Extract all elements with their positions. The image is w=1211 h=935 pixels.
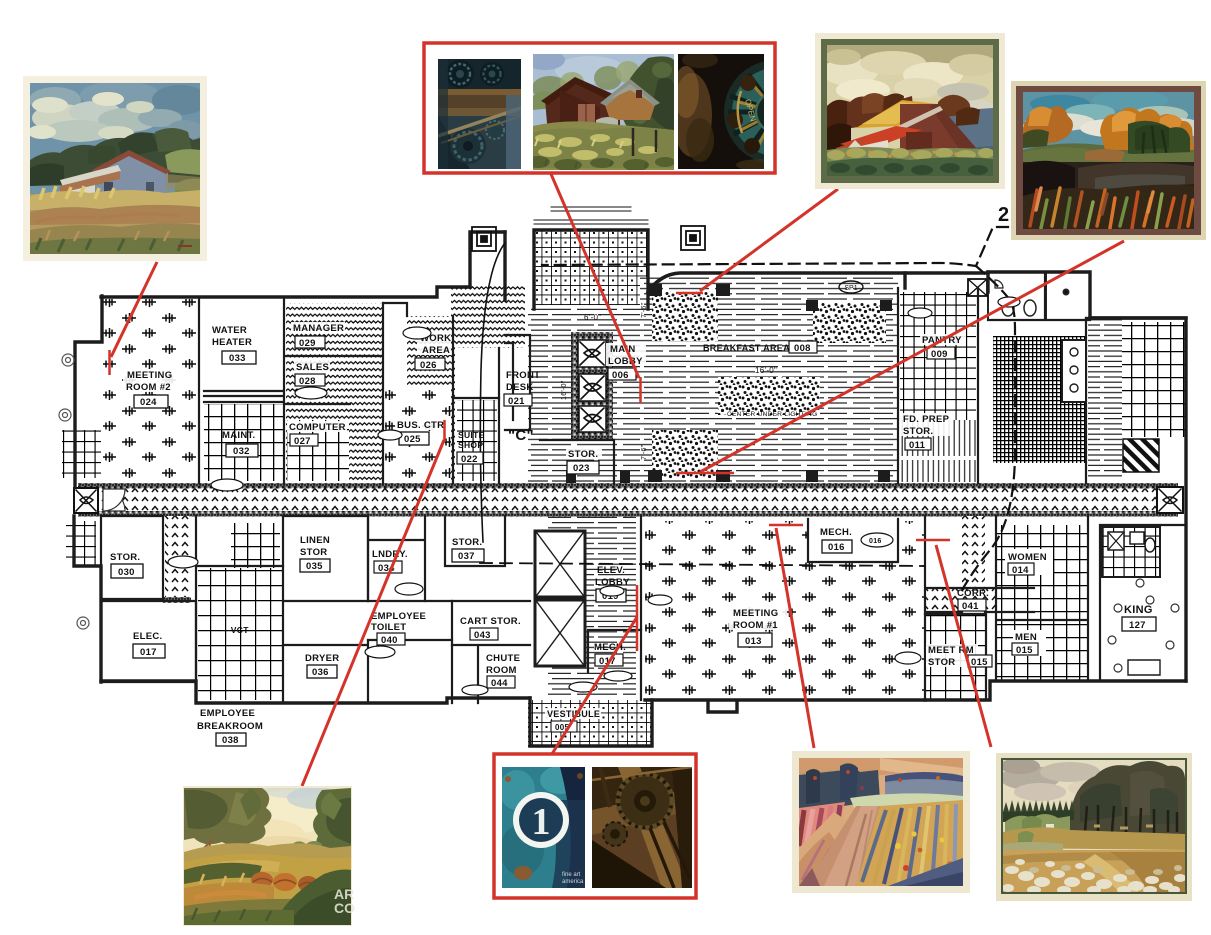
- svg-text:016: 016: [869, 538, 882, 545]
- svg-text:CHUTE: CHUTE: [486, 653, 520, 664]
- svg-text:AREA: AREA: [422, 345, 450, 356]
- svg-text:013: 013: [745, 636, 762, 647]
- svg-text:7'-6": 7'-6": [641, 444, 648, 460]
- svg-text:STOR.: STOR.: [452, 537, 482, 548]
- svg-text:LINEN: LINEN: [300, 535, 330, 546]
- svg-text:023: 023: [573, 463, 590, 474]
- svg-text:040: 040: [381, 635, 398, 646]
- svg-text:DESK: DESK: [506, 382, 534, 393]
- svg-text:DRYER: DRYER: [305, 653, 339, 664]
- svg-text:ROOM #1: ROOM #1: [733, 620, 778, 631]
- svg-text:127: 127: [1129, 620, 1146, 631]
- svg-text:MECH.: MECH.: [820, 527, 852, 538]
- svg-text:america: america: [562, 879, 584, 885]
- svg-text:CO: CO: [334, 900, 355, 916]
- svg-text:SHOP: SHOP: [458, 440, 483, 450]
- svg-text:STOR.: STOR.: [568, 449, 598, 460]
- svg-text:014: 014: [1012, 565, 1029, 576]
- svg-text:16'-0": 16'-0": [755, 366, 777, 375]
- svg-text:1: 1: [532, 801, 551, 843]
- svg-text:16'-0": 16'-0": [561, 380, 568, 400]
- svg-text:STOR: STOR: [300, 547, 327, 558]
- svg-text:WOMEN: WOMEN: [1008, 552, 1047, 563]
- svg-text:BUS. CTR: BUS. CTR: [397, 420, 444, 431]
- svg-text:029: 029: [299, 338, 316, 349]
- svg-text:BREAKFAST AREA: BREAKFAST AREA: [703, 343, 790, 353]
- svg-text:STOR: STOR: [928, 657, 955, 668]
- svg-text:044: 044: [491, 678, 508, 689]
- svg-text:BREAKROOM: BREAKROOM: [197, 721, 263, 732]
- svg-text:021: 021: [508, 396, 525, 407]
- svg-text:011: 011: [909, 440, 926, 451]
- svg-text:036: 036: [312, 667, 329, 678]
- svg-text:SUITE: SUITE: [458, 430, 485, 440]
- svg-text:006: 006: [612, 370, 629, 381]
- svg-text:EMPLOYEE: EMPLOYEE: [200, 708, 255, 719]
- svg-text:ROOM #2: ROOM #2: [126, 382, 171, 393]
- svg-text:TOILET: TOILET: [371, 622, 406, 633]
- svg-text:STOR.: STOR.: [903, 426, 933, 437]
- svg-text:KING: KING: [1124, 604, 1153, 616]
- svg-text:COMPUTER: COMPUTER: [289, 422, 346, 433]
- svg-text:FRONT: FRONT: [506, 370, 540, 381]
- svg-text:STOR.: STOR.: [110, 552, 140, 563]
- svg-text:CORR.: CORR.: [957, 588, 989, 599]
- svg-text:041: 041: [962, 601, 979, 612]
- svg-text:LNDRY.: LNDRY.: [372, 549, 408, 560]
- svg-text:SP1: SP1: [844, 285, 857, 292]
- svg-text:LOBBY: LOBBY: [608, 356, 643, 367]
- svg-text:009: 009: [931, 349, 948, 360]
- svg-text:033: 033: [229, 353, 246, 364]
- svg-text:MEN: MEN: [1015, 632, 1037, 643]
- svg-text:FD. PREP: FD. PREP: [903, 414, 950, 425]
- svg-text:043: 043: [474, 630, 491, 641]
- svg-text:WATER: WATER: [212, 325, 247, 336]
- svg-text:EMPLOYEE: EMPLOYEE: [371, 611, 426, 622]
- svg-text:MANAGER: MANAGER: [293, 323, 344, 334]
- svg-text:016: 016: [828, 542, 845, 553]
- svg-text:2: 2: [998, 204, 1009, 226]
- svg-text:024: 024: [140, 397, 157, 408]
- svg-text:—VCT: —VCT: [222, 625, 249, 635]
- svg-text:ROOM: ROOM: [486, 665, 517, 676]
- svg-text:008: 008: [794, 343, 811, 354]
- svg-text:032: 032: [233, 446, 250, 457]
- svg-text:035: 035: [306, 561, 323, 572]
- svg-text:MAINT.: MAINT.: [222, 430, 255, 441]
- svg-text:SALES: SALES: [296, 362, 329, 373]
- svg-text:7'-6": 7'-6": [641, 302, 648, 318]
- svg-text:027: 027: [294, 436, 311, 447]
- svg-text:HEATER: HEATER: [212, 337, 252, 348]
- svg-text:022: 022: [461, 454, 478, 465]
- svg-text:CART STOR.: CART STOR.: [460, 616, 521, 627]
- svg-text:017: 017: [140, 647, 157, 658]
- svg-text:MAIN: MAIN: [610, 344, 635, 355]
- svg-text:037: 037: [458, 551, 475, 562]
- svg-text:ELEC.: ELEC.: [133, 631, 162, 642]
- svg-text:MEETING: MEETING: [127, 370, 172, 381]
- svg-text:026: 026: [420, 360, 437, 371]
- svg-text:030: 030: [118, 567, 135, 578]
- svg-text:028: 028: [299, 376, 316, 387]
- svg-text:025: 025: [404, 434, 421, 445]
- svg-text:038: 038: [222, 735, 239, 746]
- svg-text:MEETING: MEETING: [733, 608, 778, 619]
- svg-text:015: 015: [971, 657, 988, 668]
- svg-text:ELEV.: ELEV.: [597, 565, 625, 576]
- svg-text:fine art: fine art: [562, 872, 581, 878]
- svg-text:015: 015: [1016, 645, 1033, 656]
- svg-text:"C": "C": [508, 427, 534, 444]
- svg-text:6'-0": 6'-0": [584, 313, 601, 322]
